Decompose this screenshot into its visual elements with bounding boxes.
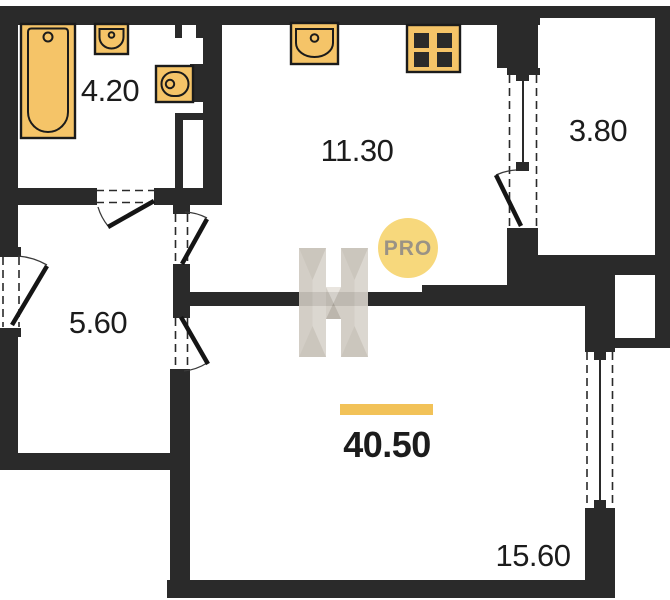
wall-segment	[173, 264, 190, 318]
door-jamb	[516, 73, 529, 81]
total-area-block: 40.50	[340, 404, 433, 465]
door-swing-arc	[496, 170, 516, 175]
wall-segment	[0, 337, 18, 470]
door-swing-arc	[98, 207, 108, 226]
door-leaf	[182, 219, 207, 264]
stove-burner	[437, 52, 452, 67]
wall-segment	[507, 228, 538, 285]
door-leaf	[181, 317, 208, 364]
bathroom-door	[96, 191, 154, 228]
area-label-living-room: 15.60	[495, 538, 570, 573]
wall-segment	[0, 6, 540, 25]
door-leaf	[108, 201, 154, 227]
shaft-wall	[175, 113, 183, 205]
door-jamb	[0, 328, 21, 337]
bathtub-basin	[28, 29, 68, 133]
wall-segment	[585, 306, 615, 352]
bathtub-icon	[21, 24, 75, 138]
wall-segment	[0, 453, 190, 470]
wall-segment	[655, 6, 670, 348]
living-room-door	[176, 317, 209, 371]
total-area-accent-bar	[340, 404, 433, 415]
window-jamb	[516, 162, 529, 171]
entrance-door	[3, 256, 47, 327]
wall-segment	[615, 338, 670, 348]
pro-badge-label: PRO	[384, 237, 433, 260]
washbasin-icon	[95, 24, 128, 54]
stove-burner	[414, 33, 429, 48]
door-leaf	[496, 175, 521, 226]
floor-plan: PRO 4.20 11.30 3.80 5.60 15.60 40.50	[0, 0, 670, 600]
door-jamb	[88, 188, 97, 205]
toilet-icon	[156, 66, 193, 102]
pro-badge: PRO	[378, 218, 438, 278]
kitchen-door	[176, 212, 208, 264]
wall-segment	[18, 188, 90, 205]
living-room-window	[587, 352, 613, 508]
vent-niche	[175, 25, 182, 38]
door-jamb	[0, 247, 21, 257]
wall-segment	[170, 369, 190, 596]
area-label-kitchen: 11.30	[321, 133, 394, 168]
area-label-balcony: 3.80	[569, 113, 628, 148]
kitchen-sink-icon	[291, 23, 338, 64]
balcony-window-door	[496, 75, 537, 228]
window-jamb	[594, 351, 606, 360]
door-swing-arc	[18, 256, 47, 265]
floor-plan-page: PRO 4.20 11.30 3.80 5.60 15.60 40.50	[0, 0, 670, 600]
wall-segment	[167, 580, 615, 598]
stove-icon	[407, 25, 460, 72]
wall-segment	[535, 6, 663, 18]
wall-segment	[422, 285, 507, 306]
stove-burner	[437, 33, 452, 48]
vent-niche	[196, 25, 203, 38]
wall-segment	[497, 25, 538, 68]
window-jamb	[594, 500, 606, 509]
door-leaf	[12, 266, 47, 325]
stove-burner	[414, 52, 429, 67]
wall-segment	[0, 6, 18, 247]
area-label-bathroom: 4.20	[81, 73, 140, 108]
area-label-hallway: 5.60	[69, 305, 128, 340]
wall-segment	[535, 255, 663, 275]
total-area-label: 40.50	[343, 424, 431, 465]
shaft-wall	[175, 113, 203, 120]
wall-segment	[203, 25, 222, 205]
watermark-logo	[299, 248, 368, 357]
